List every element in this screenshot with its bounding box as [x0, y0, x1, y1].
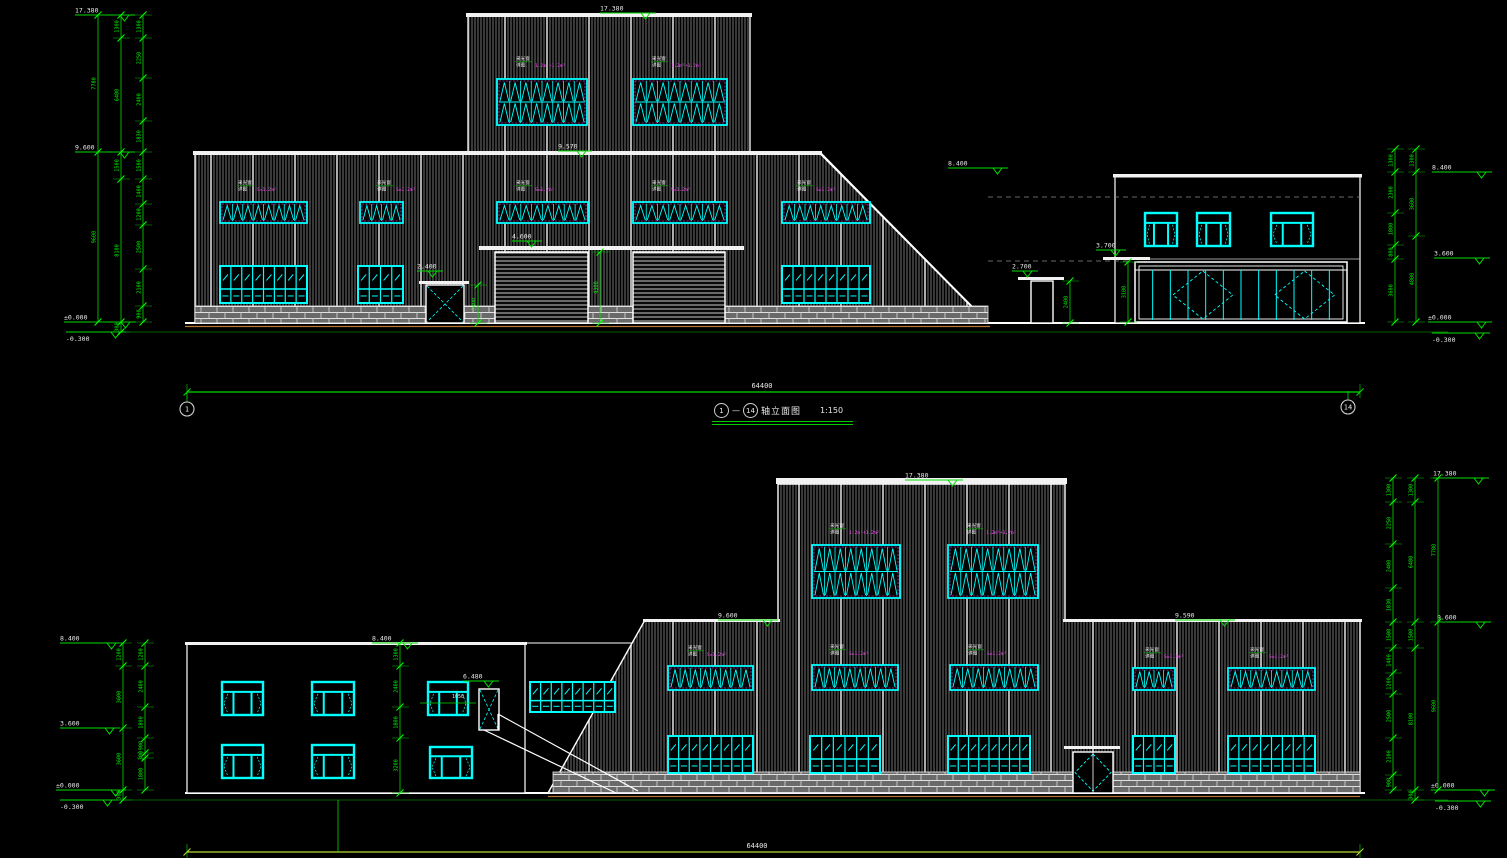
svg-text:1200: 1200	[117, 648, 123, 661]
svg-text:2400: 2400	[1387, 560, 1393, 573]
svg-text:8100: 8100	[1409, 713, 1415, 726]
parapet-band	[419, 281, 469, 284]
svg-text:300: 300	[117, 790, 123, 799]
svg-text:4300: 4300	[594, 281, 600, 294]
level-marker: -0.300	[60, 800, 118, 811]
pane-window	[668, 736, 753, 773]
louver-window	[497, 79, 587, 125]
svg-text:2.400: 2.400	[417, 263, 437, 271]
svg-text:2250: 2250	[1387, 517, 1393, 530]
svg-text:900: 900	[137, 309, 143, 318]
level-marker: 17.380	[75, 7, 135, 22]
level-marker: 8.400	[948, 160, 1008, 175]
svg-text:2250: 2250	[137, 52, 143, 65]
svg-text:1200: 1200	[1387, 677, 1393, 690]
svg-text:6480: 6480	[1409, 556, 1415, 569]
svg-text:1800: 1800	[1389, 223, 1395, 236]
door	[479, 689, 499, 730]
svg-text:3.600: 3.600	[1434, 250, 1454, 258]
annotation-text: 64400	[751, 382, 772, 390]
svg-text:采光窗: 采光窗	[688, 644, 702, 651]
parapet-band	[1103, 257, 1150, 260]
pane-window	[810, 736, 880, 773]
svg-text:S=1.2m²: S=1.2m²	[1269, 654, 1288, 660]
svg-text:1.2m²+1.2m²: 1.2m²+1.2m²	[849, 530, 879, 536]
svg-text:采光窗: 采光窗	[238, 179, 252, 186]
svg-text:S=1.2m²: S=1.2m²	[671, 187, 690, 193]
cad-drawing-stage: 采光窗详图1.2m²+1.2m²采光窗详图1.2m²+1.2m²采光窗详图S=1…	[0, 0, 1507, 858]
svg-text:1200: 1200	[139, 648, 145, 661]
svg-text:8.400: 8.400	[60, 635, 80, 643]
louver-window	[1133, 668, 1175, 690]
parapet-band	[479, 246, 744, 250]
elevation-front: 采光窗详图1.2m²+1.2m²采光窗详图1.2m²+1.2m²采光窗详图S=1…	[64, 5, 1492, 417]
level-marker: -0.300	[1435, 801, 1491, 812]
casement-window	[430, 747, 472, 778]
pane-window	[1228, 736, 1315, 773]
svg-text:3200: 3200	[394, 759, 400, 772]
svg-text:3600: 3600	[1389, 284, 1395, 297]
svg-text:采光窗: 采光窗	[1250, 646, 1264, 653]
casement-window	[1197, 213, 1230, 246]
svg-text:1: 1	[185, 406, 189, 414]
svg-text:1500: 1500	[1409, 629, 1415, 642]
roller-door	[495, 252, 588, 323]
roller-door	[633, 252, 725, 323]
svg-text:17.380: 17.380	[905, 472, 929, 480]
svg-text:采光窗: 采光窗	[516, 179, 530, 186]
svg-text:-0.300: -0.300	[60, 803, 84, 811]
svg-text:1050: 1050	[452, 694, 464, 700]
brick-base	[553, 772, 1073, 793]
svg-text:8.400: 8.400	[372, 635, 392, 643]
dimension-chain: 2400	[1062, 278, 1079, 327]
axis-bubble: 1	[180, 393, 194, 416]
level-marker: 3.600	[1434, 250, 1490, 265]
dimension-chain: 1200240018009003001800	[137, 640, 154, 794]
svg-text:采光窗: 采光窗	[652, 55, 666, 62]
svg-text:-0.300: -0.300	[66, 335, 90, 343]
svg-text:1800: 1800	[139, 716, 145, 729]
svg-text:详图: 详图	[688, 651, 698, 658]
svg-text:详图: 详图	[1250, 653, 1260, 660]
drawing-title: 1 — 14 轴立面图 1:150	[712, 403, 853, 425]
pane-window	[1133, 736, 1175, 773]
dimension-chain: 130036004800	[1408, 146, 1425, 326]
svg-text:17.380: 17.380	[600, 5, 624, 13]
svg-text:800: 800	[1389, 247, 1395, 256]
axis-bubble: 14	[1341, 391, 1355, 414]
svg-text:详图: 详图	[830, 650, 840, 657]
svg-text:1400: 1400	[1387, 654, 1393, 667]
svg-text:详图: 详图	[797, 186, 807, 193]
svg-text:2400: 2400	[137, 93, 143, 106]
annotation-text: 1050	[452, 694, 464, 700]
louver-window	[1228, 668, 1315, 690]
svg-text:详图: 详图	[967, 529, 977, 536]
elevation-rear: 采光窗详图1.2m²+1.2m²采光窗详图1.2m²+1.2m²采光窗详图S=1…	[56, 470, 1495, 858]
svg-text:1500: 1500	[137, 159, 143, 172]
axis-bubble-end: 14	[743, 403, 758, 418]
svg-text:64400: 64400	[751, 382, 772, 390]
svg-text:2300: 2300	[1389, 186, 1395, 199]
svg-text:S=1.2m²: S=1.2m²	[257, 187, 276, 193]
svg-text:2.700: 2.700	[1012, 263, 1032, 271]
pane-window	[220, 266, 307, 303]
svg-text:9.600: 9.600	[718, 612, 738, 620]
level-marker: 9.600	[75, 144, 135, 159]
svg-text:17.380: 17.380	[1433, 470, 1457, 478]
level-marker: ±0.000	[1431, 782, 1495, 797]
svg-text:300: 300	[1409, 790, 1415, 799]
pane-window	[948, 736, 1030, 773]
svg-text:S=1.2m²: S=1.2m²	[849, 651, 868, 657]
level-marker: 3.600	[60, 720, 120, 735]
brick-base	[588, 306, 633, 323]
svg-text:详图: 详图	[238, 186, 248, 193]
louver-window	[782, 202, 870, 223]
dimension-chain: 1300648015008100300	[113, 12, 130, 336]
svg-text:详图: 详图	[1145, 653, 1155, 660]
svg-text:采光窗: 采光窗	[1145, 646, 1159, 653]
louver-window	[220, 202, 307, 223]
svg-text:900: 900	[139, 741, 145, 750]
casement-window	[222, 745, 263, 778]
svg-text:900: 900	[1387, 778, 1393, 787]
level-marker: 9.600	[1437, 614, 1491, 629]
svg-text:6480: 6480	[115, 89, 121, 102]
svg-text:1.2m²+1.2m²: 1.2m²+1.2m²	[671, 63, 701, 69]
title-dash: —	[732, 406, 740, 415]
svg-text:3.600: 3.600	[60, 720, 80, 728]
level-marker: 8.400	[60, 635, 122, 650]
svg-text:8.400: 8.400	[948, 160, 968, 168]
svg-text:1800: 1800	[394, 716, 400, 729]
svg-text:-0.300: -0.300	[1435, 804, 1459, 812]
svg-text:-0.300: -0.300	[1432, 336, 1456, 344]
annotation-text: 64400	[746, 842, 767, 850]
svg-text:2500: 2500	[137, 241, 143, 254]
svg-text:1300: 1300	[394, 648, 400, 661]
svg-text:1300: 1300	[1389, 154, 1395, 167]
svg-text:±0.000: ±0.000	[1431, 782, 1455, 790]
svg-text:1500: 1500	[115, 159, 121, 172]
svg-text:详图: 详图	[968, 650, 978, 657]
pane-window	[782, 266, 870, 303]
casement-window	[312, 682, 354, 715]
dimension-chain: 120036003600300	[115, 640, 132, 804]
svg-text:300: 300	[139, 751, 145, 760]
svg-text:1.2m²+1.2m²: 1.2m²+1.2m²	[986, 530, 1016, 536]
casement-window	[222, 682, 263, 715]
casement-window	[312, 745, 354, 778]
louver-window	[812, 545, 900, 598]
parapet-band	[1064, 746, 1120, 749]
svg-text:详图: 详图	[652, 186, 662, 193]
svg-text:采光窗: 采光窗	[967, 522, 981, 529]
svg-text:±0.000: ±0.000	[1428, 314, 1452, 322]
casement-window	[1145, 213, 1177, 246]
svg-text:3600: 3600	[1410, 198, 1416, 211]
svg-text:1200: 1200	[137, 208, 143, 221]
svg-text:2500: 2500	[1387, 710, 1393, 723]
level-marker: -0.300	[66, 332, 126, 343]
svg-text:14: 14	[1344, 404, 1352, 412]
svg-text:S=1.2m²: S=1.2m²	[707, 652, 726, 658]
svg-text:1300: 1300	[1410, 154, 1416, 167]
level-marker: 8.400	[1432, 164, 1492, 179]
svg-text:详图: 详图	[516, 186, 526, 193]
brick-base	[1113, 772, 1360, 793]
louver-window	[360, 202, 403, 223]
svg-text:采光窗: 采光窗	[377, 179, 391, 186]
dimension-chain: 130022502400183015001400120025002100900	[1385, 475, 1402, 794]
dimension-chain: 130022502400183015001400120025002100900	[135, 12, 152, 326]
door	[426, 285, 464, 323]
svg-text:S=1.2m²: S=1.2m²	[816, 187, 835, 193]
svg-text:2100: 2100	[1387, 750, 1393, 763]
svg-text:8.400: 8.400	[1432, 164, 1452, 172]
parapet-band	[466, 13, 752, 17]
svg-text:详图: 详图	[830, 529, 840, 536]
svg-text:4800: 4800	[1410, 273, 1416, 286]
dimension-chain: 1300230018008003600	[1387, 146, 1404, 326]
svg-text:±0.000: ±0.000	[56, 782, 80, 790]
level-marker: 17.380	[1433, 470, 1489, 485]
axis-bubble-start: 1	[714, 403, 729, 418]
glass-curtain-wall	[1135, 262, 1347, 322]
svg-text:1.2m²+1.2m²: 1.2m²+1.2m²	[535, 63, 565, 69]
svg-text:1300: 1300	[115, 20, 121, 33]
door	[1073, 752, 1113, 793]
svg-text:8100: 8100	[115, 244, 121, 257]
svg-text:采光窗: 采光窗	[830, 643, 844, 650]
svg-text:详图: 详图	[516, 62, 526, 69]
svg-text:1500: 1500	[1387, 629, 1393, 642]
svg-text:1830: 1830	[137, 130, 143, 143]
level-marker: 2.700	[1012, 263, 1038, 278]
svg-text:采光窗: 采光窗	[797, 179, 811, 186]
level-marker: -0.300	[1432, 333, 1490, 344]
louver-window	[668, 666, 753, 690]
svg-text:1400: 1400	[137, 185, 143, 198]
level-marker: ±0.000	[1428, 314, 1492, 329]
louver-window	[950, 665, 1038, 690]
svg-text:1800: 1800	[139, 768, 145, 781]
level-marker: ±0.000	[56, 782, 126, 797]
title-label: 轴立面图	[761, 404, 801, 417]
casement-window	[1271, 213, 1313, 246]
svg-text:S=1.2m²: S=1.2m²	[987, 651, 1006, 657]
svg-text:9600: 9600	[92, 231, 98, 244]
svg-text:详图: 详图	[652, 62, 662, 69]
dimension-chain: 77809600	[90, 12, 107, 326]
cad-canvas[interactable]: 采光窗详图1.2m²+1.2m²采光窗详图1.2m²+1.2m²采光窗详图S=1…	[0, 0, 1507, 858]
brick-base	[725, 306, 988, 323]
svg-text:3100: 3100	[1122, 286, 1128, 299]
svg-text:2400: 2400	[472, 298, 478, 311]
svg-text:1300: 1300	[1409, 484, 1415, 497]
overall-dimension	[184, 384, 1364, 398]
svg-text:17.380: 17.380	[75, 7, 99, 15]
svg-text:3600: 3600	[117, 691, 123, 704]
svg-text:1300: 1300	[137, 20, 143, 33]
overall-dimension	[184, 844, 1364, 858]
louver-window	[633, 202, 727, 223]
svg-text:1830: 1830	[1387, 599, 1393, 612]
svg-text:9600: 9600	[1432, 700, 1438, 713]
parapet-band	[1018, 277, 1064, 280]
svg-text:±0.000: ±0.000	[64, 314, 88, 322]
svg-text:4.600: 4.600	[512, 233, 532, 241]
svg-text:采光窗: 采光窗	[516, 55, 530, 62]
svg-text:9.590: 9.590	[1175, 612, 1195, 620]
parapet-band	[193, 151, 822, 155]
svg-text:S=1.2m²: S=1.2m²	[396, 187, 415, 193]
pane-window	[530, 682, 615, 712]
svg-text:S=1.2m²: S=1.2m²	[535, 187, 554, 193]
parapet-band	[185, 642, 527, 645]
svg-text:S=1.2m²: S=1.2m²	[1164, 654, 1183, 660]
title-scale: 1:150	[820, 406, 843, 415]
svg-text:采光窗: 采光窗	[968, 643, 982, 650]
louver-window	[633, 79, 727, 125]
svg-text:详图: 详图	[377, 186, 387, 193]
svg-text:2400: 2400	[139, 680, 145, 693]
svg-text:6.480: 6.480	[463, 673, 483, 681]
svg-text:3.700: 3.700	[1096, 242, 1116, 250]
svg-text:2400: 2400	[394, 680, 400, 693]
svg-text:300: 300	[115, 322, 121, 331]
svg-text:7780: 7780	[1432, 544, 1438, 557]
svg-text:9.600: 9.600	[75, 144, 95, 152]
svg-text:2400: 2400	[1064, 296, 1070, 309]
pane-window	[358, 266, 403, 303]
louver-window	[812, 665, 898, 690]
svg-text:2100: 2100	[137, 281, 143, 294]
svg-text:3600: 3600	[117, 753, 123, 766]
brick-base	[195, 306, 426, 323]
dimension-chain: 1300648015008100300	[1407, 475, 1424, 804]
svg-text:采光窗: 采光窗	[652, 179, 666, 186]
svg-text:1300: 1300	[1387, 484, 1393, 497]
svg-text:7780: 7780	[92, 77, 98, 90]
svg-text:采光窗: 采光窗	[830, 522, 844, 529]
svg-text:9.570: 9.570	[558, 143, 578, 151]
brick-base	[463, 306, 495, 323]
door	[1031, 281, 1053, 323]
louver-window	[497, 202, 588, 223]
svg-text:64400: 64400	[746, 842, 767, 850]
louver-window	[948, 545, 1038, 598]
dimension-chain: 77809600	[1430, 475, 1447, 794]
parapet-band	[1113, 174, 1362, 178]
